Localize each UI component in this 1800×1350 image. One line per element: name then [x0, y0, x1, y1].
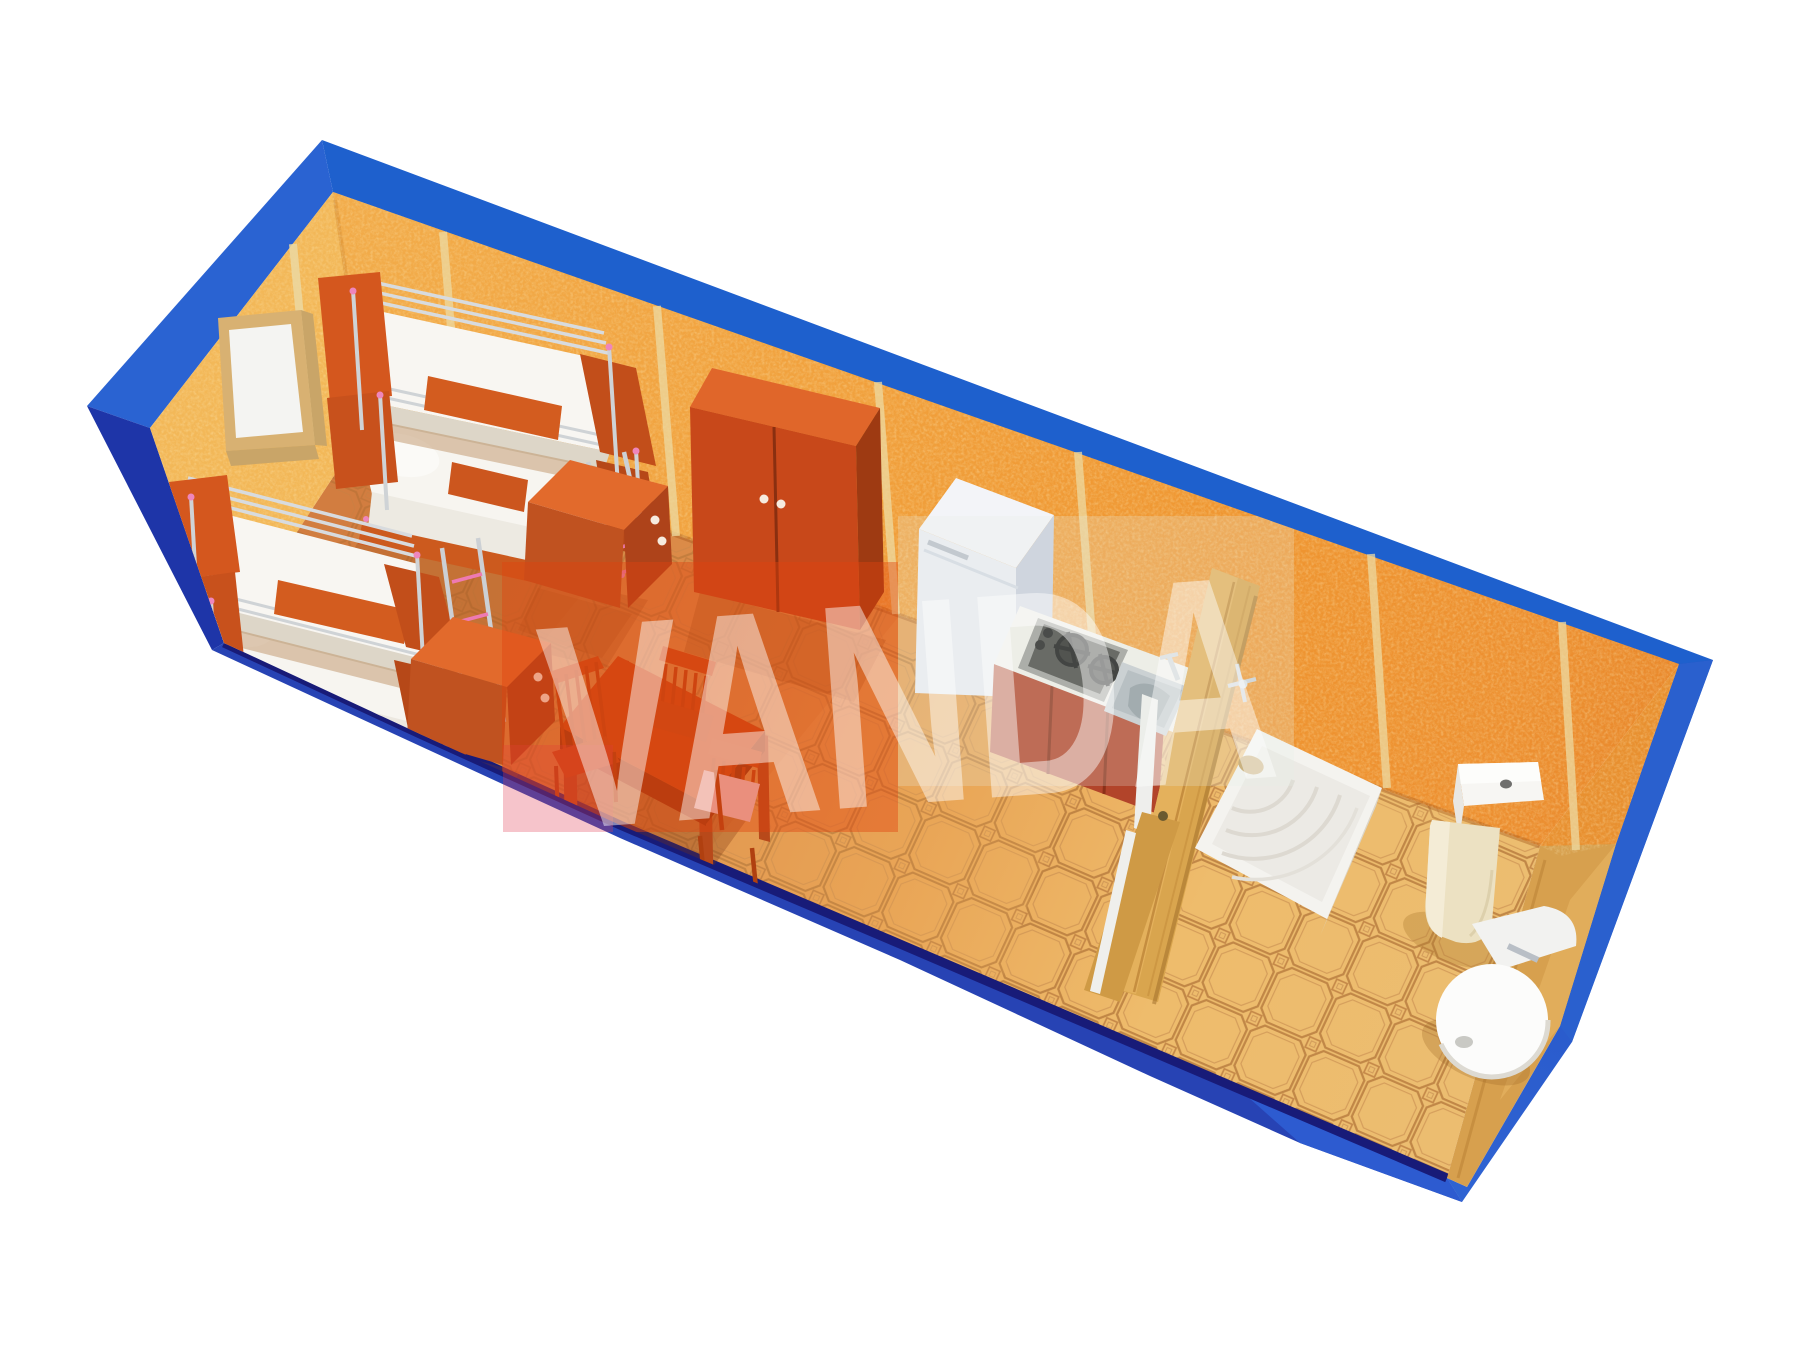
svg-text:VANDA: VANDA [530, 513, 1287, 892]
